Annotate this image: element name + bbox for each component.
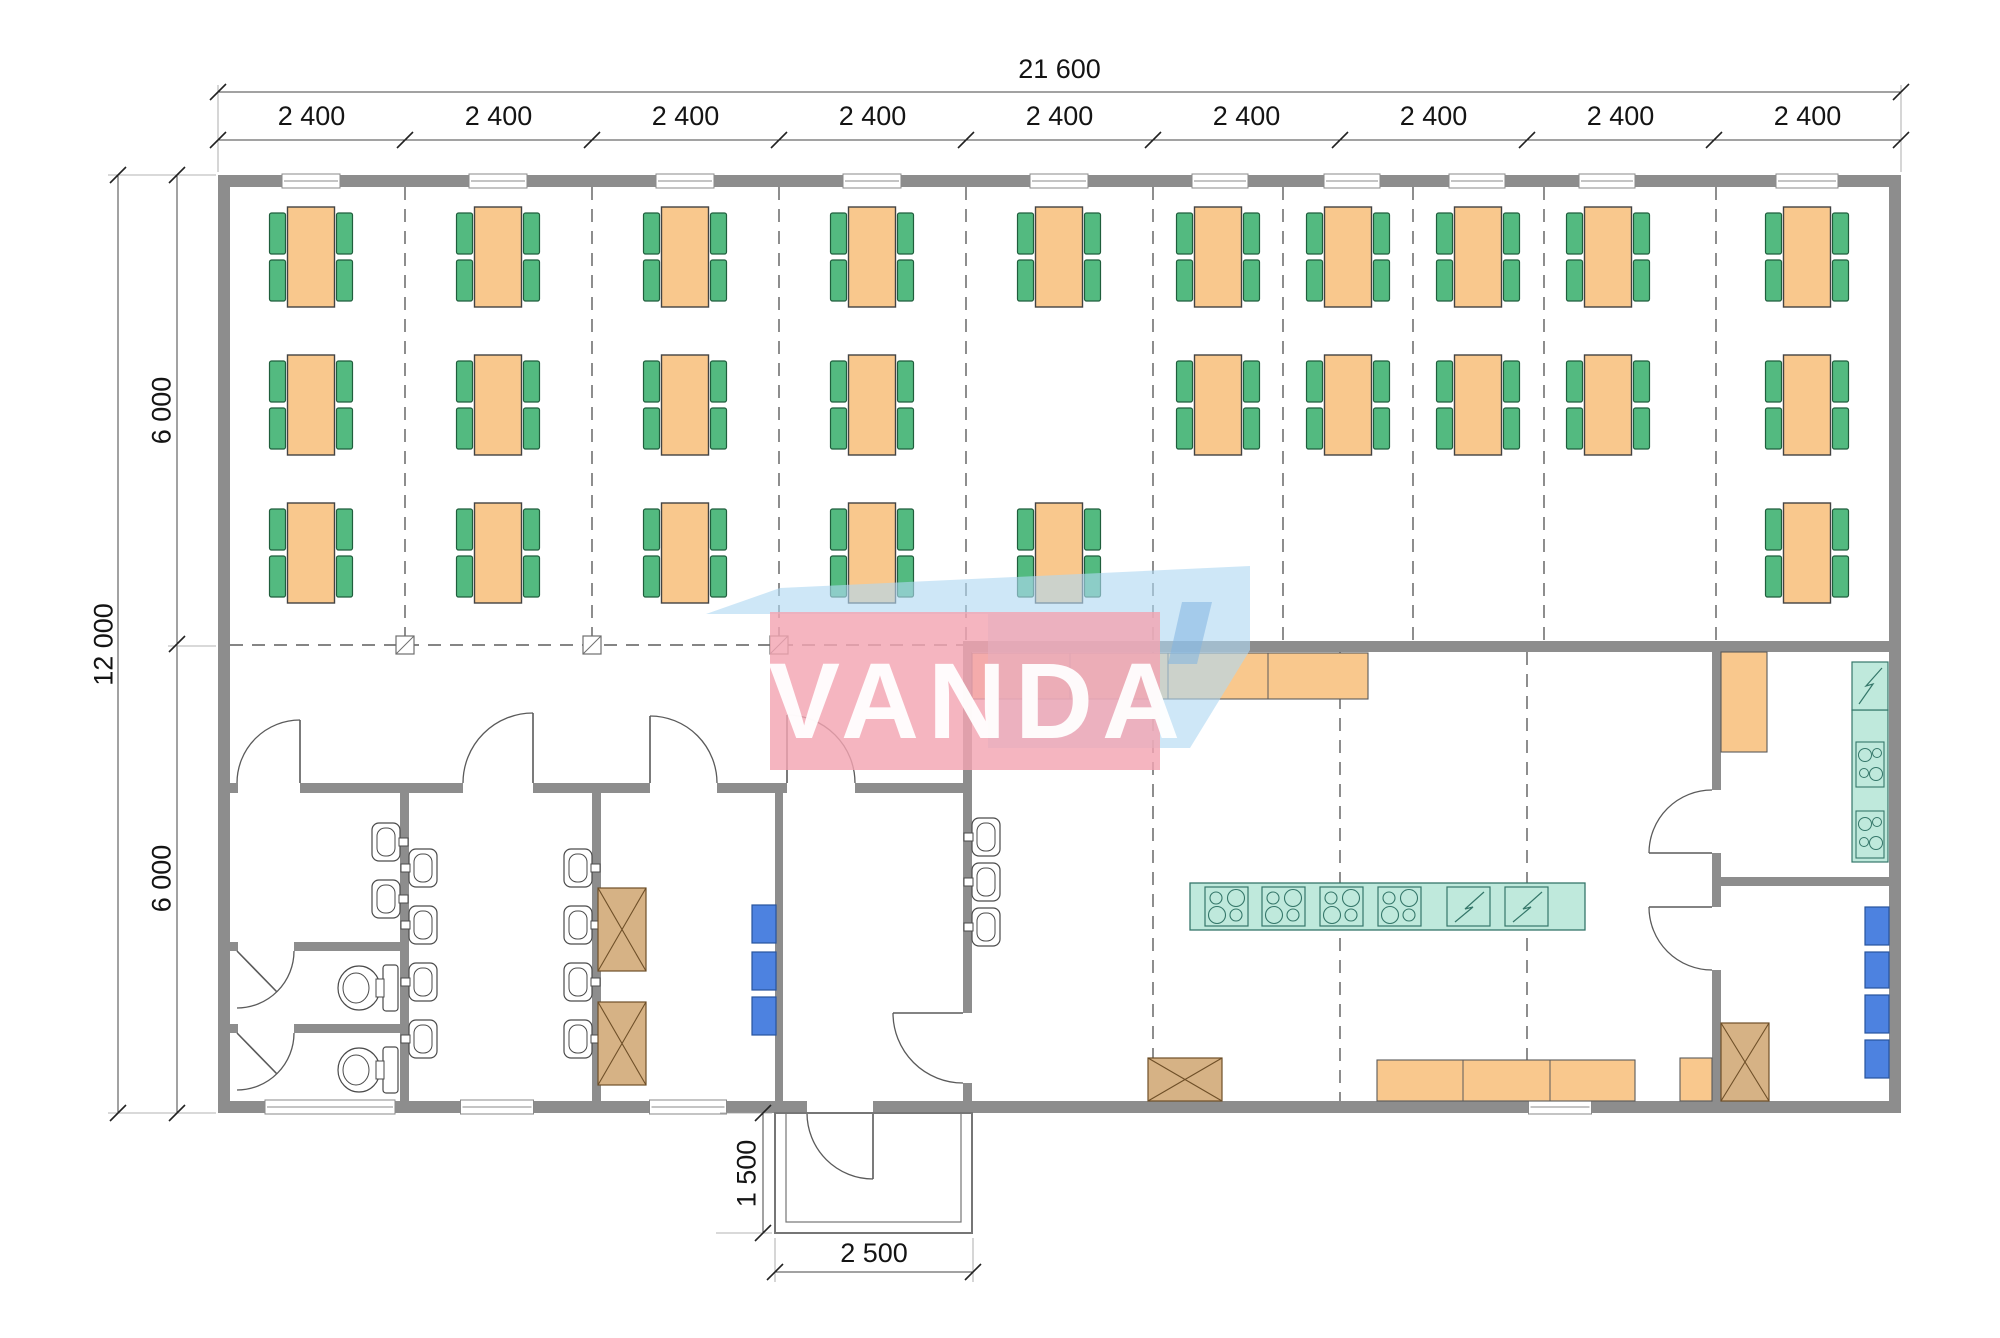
sink: [564, 963, 592, 1001]
locker-box: [752, 997, 776, 1035]
chair: [1766, 361, 1782, 402]
dim-bay-label: 2 400: [1153, 103, 1340, 130]
dining-table: [475, 503, 522, 603]
wall-segment: [218, 175, 230, 1113]
toilet-tank: [383, 965, 398, 1011]
chair: [1244, 213, 1260, 254]
dining-table: [1325, 207, 1372, 307]
dim-porch-width-label: 2 500: [814, 1240, 934, 1267]
chair: [1567, 408, 1583, 449]
dining-table: [1036, 207, 1083, 307]
sink-faucet: [399, 895, 408, 903]
chair: [270, 509, 286, 550]
chair: [711, 361, 727, 402]
wall-segment: [1712, 853, 1721, 907]
sink: [972, 908, 1000, 946]
chair: [1504, 408, 1520, 449]
chair: [270, 213, 286, 254]
chair: [1244, 408, 1260, 449]
chair: [898, 509, 914, 550]
chair: [831, 260, 847, 301]
toilet-tank: [383, 1047, 398, 1093]
toilet-bowl: [338, 1048, 380, 1092]
chair: [1567, 361, 1583, 402]
door-swing-arc: [1649, 907, 1712, 970]
chair: [1177, 213, 1193, 254]
chair: [457, 408, 473, 449]
dining-table: [1585, 355, 1632, 455]
dim-bay-label: 2 400: [966, 103, 1153, 130]
dim-bay-label: 2 400: [1714, 103, 1901, 130]
dining-table: [662, 355, 709, 455]
dim-bay-label: 2 400: [1527, 103, 1714, 130]
chair: [644, 260, 660, 301]
door-swing-arc: [463, 713, 533, 783]
equipment-strip: [1852, 710, 1888, 862]
door-swing-arc: [650, 716, 717, 783]
chair: [898, 260, 914, 301]
chair: [524, 509, 540, 550]
dim-total-width-label: 21 600: [218, 56, 1901, 83]
door-swing-arc: [1649, 790, 1712, 853]
wall-segment: [855, 783, 963, 793]
dining-table: [288, 503, 335, 603]
chair: [337, 361, 353, 402]
chair: [1634, 361, 1650, 402]
sink-faucet: [964, 833, 973, 841]
dining-table: [288, 207, 335, 307]
chair: [1374, 361, 1390, 402]
chair: [1244, 361, 1260, 402]
chair: [1374, 213, 1390, 254]
kitchen-island: [1190, 883, 1585, 930]
chair: [1766, 260, 1782, 301]
wall-segment: [230, 783, 238, 793]
chair: [1437, 213, 1453, 254]
chair: [898, 408, 914, 449]
chair: [457, 556, 473, 597]
dining-table: [1455, 355, 1502, 455]
wall-segment: [1712, 970, 1721, 1101]
dining-table: [1784, 503, 1831, 603]
dining-table: [1325, 355, 1372, 455]
chair: [1634, 260, 1650, 301]
dining-table: [662, 503, 709, 603]
sink: [564, 849, 592, 887]
chair: [1833, 361, 1849, 402]
dim-half-height-label: 6 000: [149, 819, 176, 939]
chair: [1307, 213, 1323, 254]
chair: [644, 408, 660, 449]
wall-segment: [230, 942, 238, 951]
toilet-seat-hinge: [376, 1061, 384, 1079]
dim-bay-label: 2 400: [779, 103, 966, 130]
sink: [564, 1020, 592, 1058]
chair: [337, 509, 353, 550]
dim-bay-label: 2 400: [405, 103, 592, 130]
sink-faucet: [401, 864, 410, 872]
door-leaf: [237, 1033, 277, 1074]
locker-box: [1865, 995, 1889, 1033]
dining-table: [1585, 207, 1632, 307]
chair: [1437, 260, 1453, 301]
door-leaf: [237, 951, 277, 992]
wall-segment: [300, 783, 463, 793]
chair: [337, 260, 353, 301]
toilet-seat-hinge: [376, 979, 384, 997]
chair: [1504, 260, 1520, 301]
sink: [409, 1020, 437, 1058]
chair: [1018, 260, 1034, 301]
door-swing-arc: [893, 1013, 963, 1083]
chair: [711, 509, 727, 550]
chair: [1833, 260, 1849, 301]
floor-plan-canvas: 21 600 2 400 2 400 2 400 2 400 2 400 2 4…: [0, 0, 2000, 1338]
locker-box: [1865, 952, 1889, 988]
sink-faucet: [399, 838, 408, 846]
dim-bay-label: 2 400: [592, 103, 779, 130]
toilet-bowl: [338, 966, 380, 1010]
chair: [1374, 260, 1390, 301]
locker-box: [1865, 907, 1889, 945]
dining-table: [849, 207, 896, 307]
chair: [457, 509, 473, 550]
dining-table: [288, 355, 335, 455]
chair: [524, 260, 540, 301]
sink-faucet: [964, 923, 973, 931]
sink-faucet: [964, 878, 973, 886]
door-swing-arc: [807, 1113, 873, 1179]
chair: [270, 556, 286, 597]
dining-tables: [270, 207, 1849, 603]
chair: [711, 408, 727, 449]
locker-box: [1865, 1040, 1889, 1078]
chair: [524, 361, 540, 402]
fridge-unit: [1852, 662, 1888, 710]
sink: [972, 863, 1000, 901]
wall-segment: [230, 1024, 238, 1033]
chair: [1437, 408, 1453, 449]
chair: [1567, 213, 1583, 254]
dining-table: [1784, 207, 1831, 307]
chair: [270, 260, 286, 301]
chair: [1833, 213, 1849, 254]
sinks: [372, 818, 1000, 1058]
chair: [644, 509, 660, 550]
chair: [831, 408, 847, 449]
chair: [457, 260, 473, 301]
dining-table: [1195, 355, 1242, 455]
chair: [1018, 213, 1034, 254]
sink-faucet: [591, 864, 600, 872]
dim-porch-depth-label: 1 500: [734, 1114, 761, 1234]
sink-faucet: [401, 1035, 410, 1043]
right-room-equipment: [1852, 662, 1888, 862]
wall-segment: [1721, 877, 1889, 886]
chair: [1374, 408, 1390, 449]
chair: [711, 556, 727, 597]
wall-segment: [294, 942, 400, 951]
chair: [1085, 509, 1101, 550]
chair: [1634, 408, 1650, 449]
dining-table: [1784, 355, 1831, 455]
counter: [1377, 1060, 1635, 1101]
chair: [644, 213, 660, 254]
chair: [711, 260, 727, 301]
dim-bay-label: 2 400: [218, 103, 405, 130]
dim-bay-label: 2 400: [1340, 103, 1527, 130]
chair: [1085, 260, 1101, 301]
chair: [1504, 361, 1520, 402]
chair: [711, 213, 727, 254]
sink: [972, 818, 1000, 856]
chair: [270, 361, 286, 402]
locker-box: [752, 952, 776, 990]
dining-table: [475, 355, 522, 455]
dining-table: [1195, 207, 1242, 307]
chair: [1244, 260, 1260, 301]
chair: [457, 361, 473, 402]
sink: [409, 906, 437, 944]
dining-table: [475, 207, 522, 307]
sink: [372, 880, 400, 918]
chair: [1307, 260, 1323, 301]
chair: [644, 361, 660, 402]
counter: [1721, 652, 1767, 752]
chair: [1177, 361, 1193, 402]
chair: [1307, 408, 1323, 449]
sink: [564, 906, 592, 944]
chair: [337, 556, 353, 597]
chair: [1307, 361, 1323, 402]
dining-table: [662, 207, 709, 307]
chair: [337, 213, 353, 254]
dining-table: [1455, 207, 1502, 307]
wall-segment: [294, 1024, 400, 1033]
chair: [1085, 213, 1101, 254]
chair: [1634, 213, 1650, 254]
sink-faucet: [591, 978, 600, 986]
chair: [1833, 509, 1849, 550]
chair: [1833, 556, 1849, 597]
chair: [524, 408, 540, 449]
counter: [1680, 1058, 1712, 1101]
chair: [1766, 556, 1782, 597]
chair: [1766, 509, 1782, 550]
vanda-watermark: VANDA: [768, 638, 1186, 763]
wall-segment: [533, 783, 650, 793]
chair: [1018, 509, 1034, 550]
sink-faucet: [401, 921, 410, 929]
locker-box: [752, 905, 776, 943]
chair: [831, 361, 847, 402]
chair: [1437, 361, 1453, 402]
chair: [524, 213, 540, 254]
sink: [372, 823, 400, 861]
chair: [1504, 213, 1520, 254]
chair: [831, 509, 847, 550]
chair: [524, 556, 540, 597]
sink: [409, 963, 437, 1001]
chair: [1766, 408, 1782, 449]
chair: [644, 556, 660, 597]
door-swing-arc: [237, 720, 300, 783]
sink-faucet: [401, 978, 410, 986]
chair: [337, 408, 353, 449]
dining-table: [849, 355, 896, 455]
chair: [1177, 260, 1193, 301]
wall-segment: [1712, 652, 1721, 790]
chair: [457, 213, 473, 254]
chair: [898, 213, 914, 254]
chair: [270, 408, 286, 449]
chair: [1567, 260, 1583, 301]
chair: [1766, 213, 1782, 254]
chair: [1833, 408, 1849, 449]
sink: [409, 849, 437, 887]
chair: [898, 361, 914, 402]
dim-half-height-label: 6 000: [149, 351, 176, 471]
chair: [1177, 408, 1193, 449]
chair: [831, 213, 847, 254]
dim-total-height-label: 12 000: [91, 585, 118, 705]
wall-segment: [963, 1083, 972, 1101]
wall-segment: [873, 1101, 1901, 1113]
